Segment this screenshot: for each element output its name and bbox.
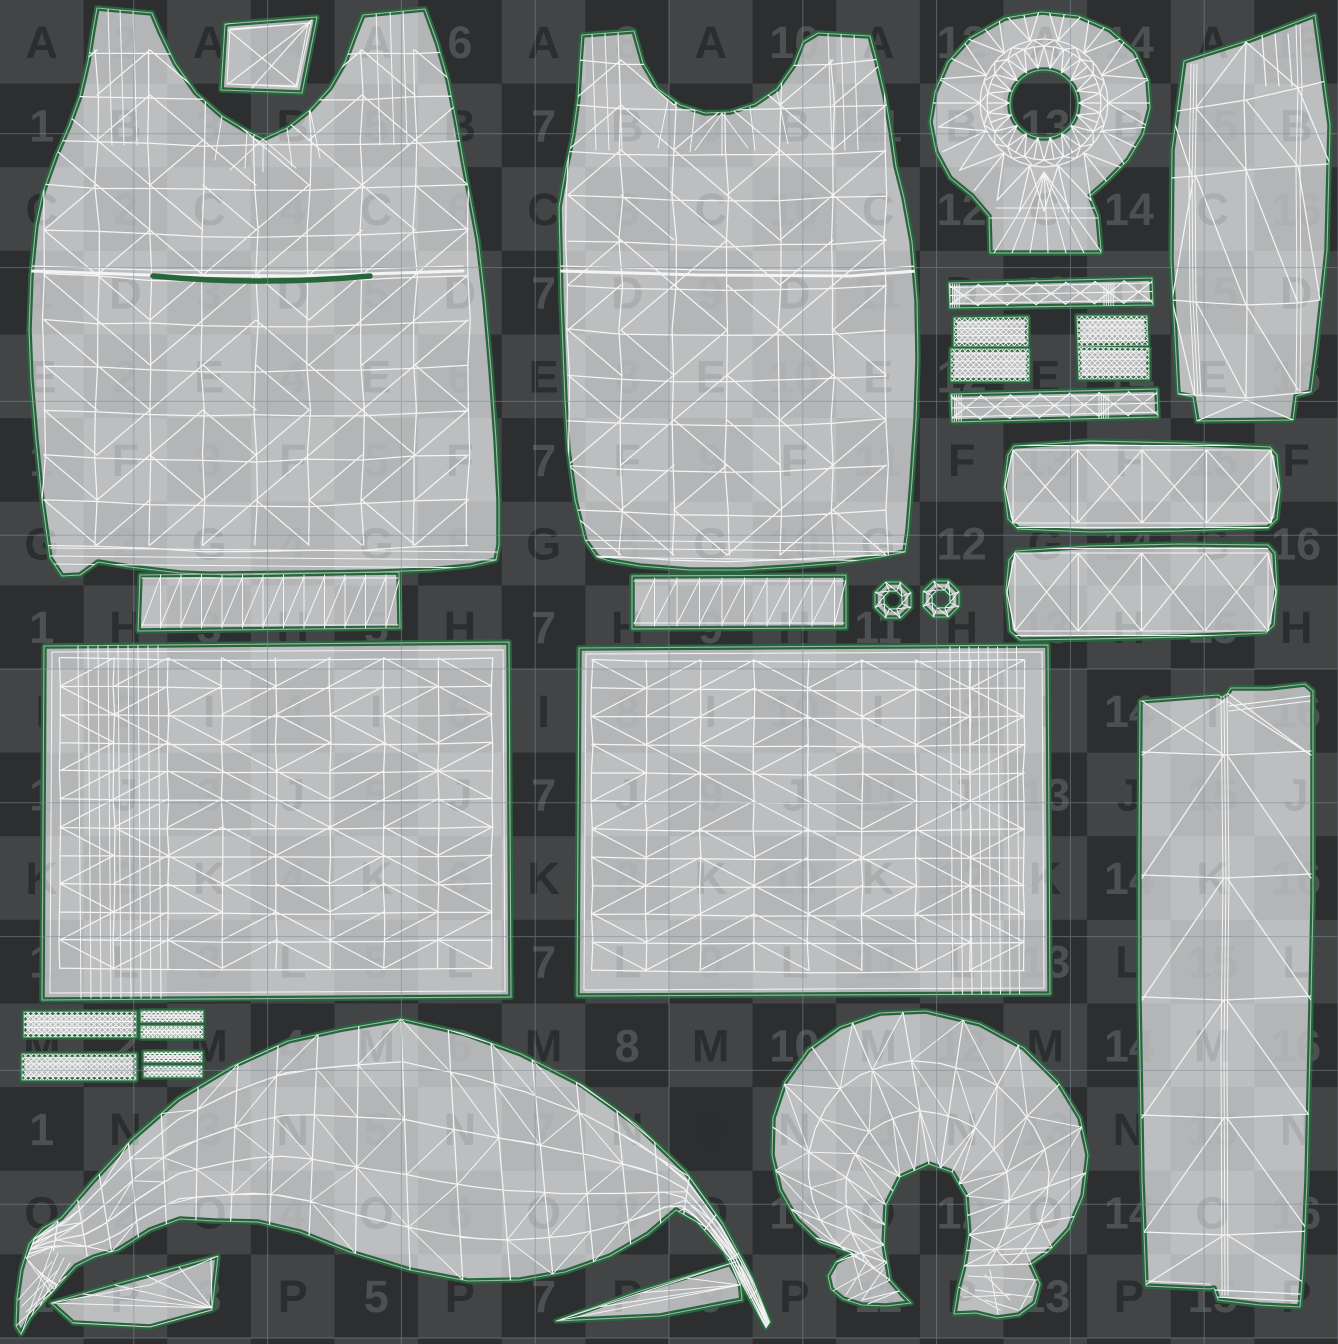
svg-text:3: 3 <box>197 1104 222 1155</box>
svg-text:I: I <box>872 686 885 737</box>
svg-text:6: 6 <box>447 853 472 904</box>
svg-text:C: C <box>527 184 560 235</box>
svg-text:E: E <box>1198 351 1228 402</box>
svg-text:F: F <box>781 435 809 486</box>
svg-text:A: A <box>527 17 560 68</box>
svg-text:N: N <box>276 1104 309 1155</box>
svg-text:4: 4 <box>280 519 305 570</box>
svg-text:M: M <box>859 1020 897 1071</box>
svg-text:5: 5 <box>364 1271 389 1322</box>
svg-text:C: C <box>1196 184 1229 235</box>
svg-text:J: J <box>1284 769 1309 820</box>
svg-text:L: L <box>1282 937 1310 988</box>
svg-text:6: 6 <box>447 519 472 570</box>
svg-text:10: 10 <box>769 519 819 570</box>
svg-text:8: 8 <box>615 184 640 235</box>
svg-text:A: A <box>695 17 728 68</box>
svg-text:F: F <box>1282 435 1310 486</box>
svg-text:F: F <box>112 435 140 486</box>
svg-text:13: 13 <box>1020 1104 1070 1155</box>
svg-text:J: J <box>615 769 640 820</box>
svg-text:G: G <box>192 519 227 570</box>
svg-text:M: M <box>1194 1020 1232 1071</box>
svg-text:K: K <box>862 853 895 904</box>
svg-text:P: P <box>278 1271 308 1322</box>
svg-text:5: 5 <box>364 435 389 486</box>
svg-text:A: A <box>26 17 59 68</box>
svg-text:9: 9 <box>698 769 723 820</box>
svg-text:F: F <box>948 435 976 486</box>
svg-text:E: E <box>194 351 224 402</box>
svg-text:16: 16 <box>1271 519 1321 570</box>
svg-text:12: 12 <box>937 519 987 570</box>
svg-text:C: C <box>360 184 393 235</box>
svg-text:O: O <box>1028 1188 1063 1239</box>
svg-text:9: 9 <box>698 1104 723 1155</box>
svg-text:11: 11 <box>854 435 902 486</box>
svg-text:14: 14 <box>1104 184 1154 235</box>
svg-text:M: M <box>692 1020 730 1071</box>
svg-text:15: 15 <box>1188 1104 1238 1155</box>
svg-text:1: 1 <box>29 100 54 151</box>
svg-text:15: 15 <box>1188 268 1238 319</box>
svg-text:6: 6 <box>447 17 472 68</box>
svg-text:8: 8 <box>615 351 640 402</box>
svg-text:H: H <box>1280 602 1313 653</box>
svg-text:K: K <box>360 853 393 904</box>
svg-text:C: C <box>695 184 728 235</box>
svg-text:B: B <box>945 100 978 151</box>
svg-text:K: K <box>527 853 560 904</box>
svg-text:E: E <box>696 351 726 402</box>
svg-text:5: 5 <box>364 769 389 820</box>
svg-text:10: 10 <box>769 686 819 737</box>
svg-text:3: 3 <box>197 769 222 820</box>
svg-text:15: 15 <box>1188 937 1238 988</box>
svg-text:D: D <box>611 268 644 319</box>
svg-text:N: N <box>444 1104 477 1155</box>
svg-text:I: I <box>537 686 550 737</box>
svg-text:O: O <box>526 1188 561 1239</box>
svg-text:E: E <box>361 351 391 402</box>
svg-text:O: O <box>359 1188 394 1239</box>
svg-text:L: L <box>446 937 474 988</box>
svg-text:8: 8 <box>615 1020 640 1071</box>
svg-text:4: 4 <box>280 686 305 737</box>
svg-text:10: 10 <box>769 853 819 904</box>
svg-text:8: 8 <box>615 853 640 904</box>
svg-text:L: L <box>613 937 641 988</box>
svg-text:E: E <box>529 351 559 402</box>
svg-text:D: D <box>1280 268 1313 319</box>
svg-text:C: C <box>193 184 226 235</box>
svg-text:G: G <box>526 519 561 570</box>
svg-text:L: L <box>781 937 809 988</box>
svg-text:P: P <box>779 1271 809 1322</box>
svg-text:K: K <box>193 853 226 904</box>
svg-text:I: I <box>370 686 383 737</box>
svg-text:10: 10 <box>769 351 819 402</box>
svg-text:15: 15 <box>1188 769 1238 820</box>
svg-text:1: 1 <box>29 1104 54 1155</box>
svg-text:C: C <box>862 184 895 235</box>
svg-text:P: P <box>1114 1271 1144 1322</box>
svg-text:3: 3 <box>197 937 222 988</box>
